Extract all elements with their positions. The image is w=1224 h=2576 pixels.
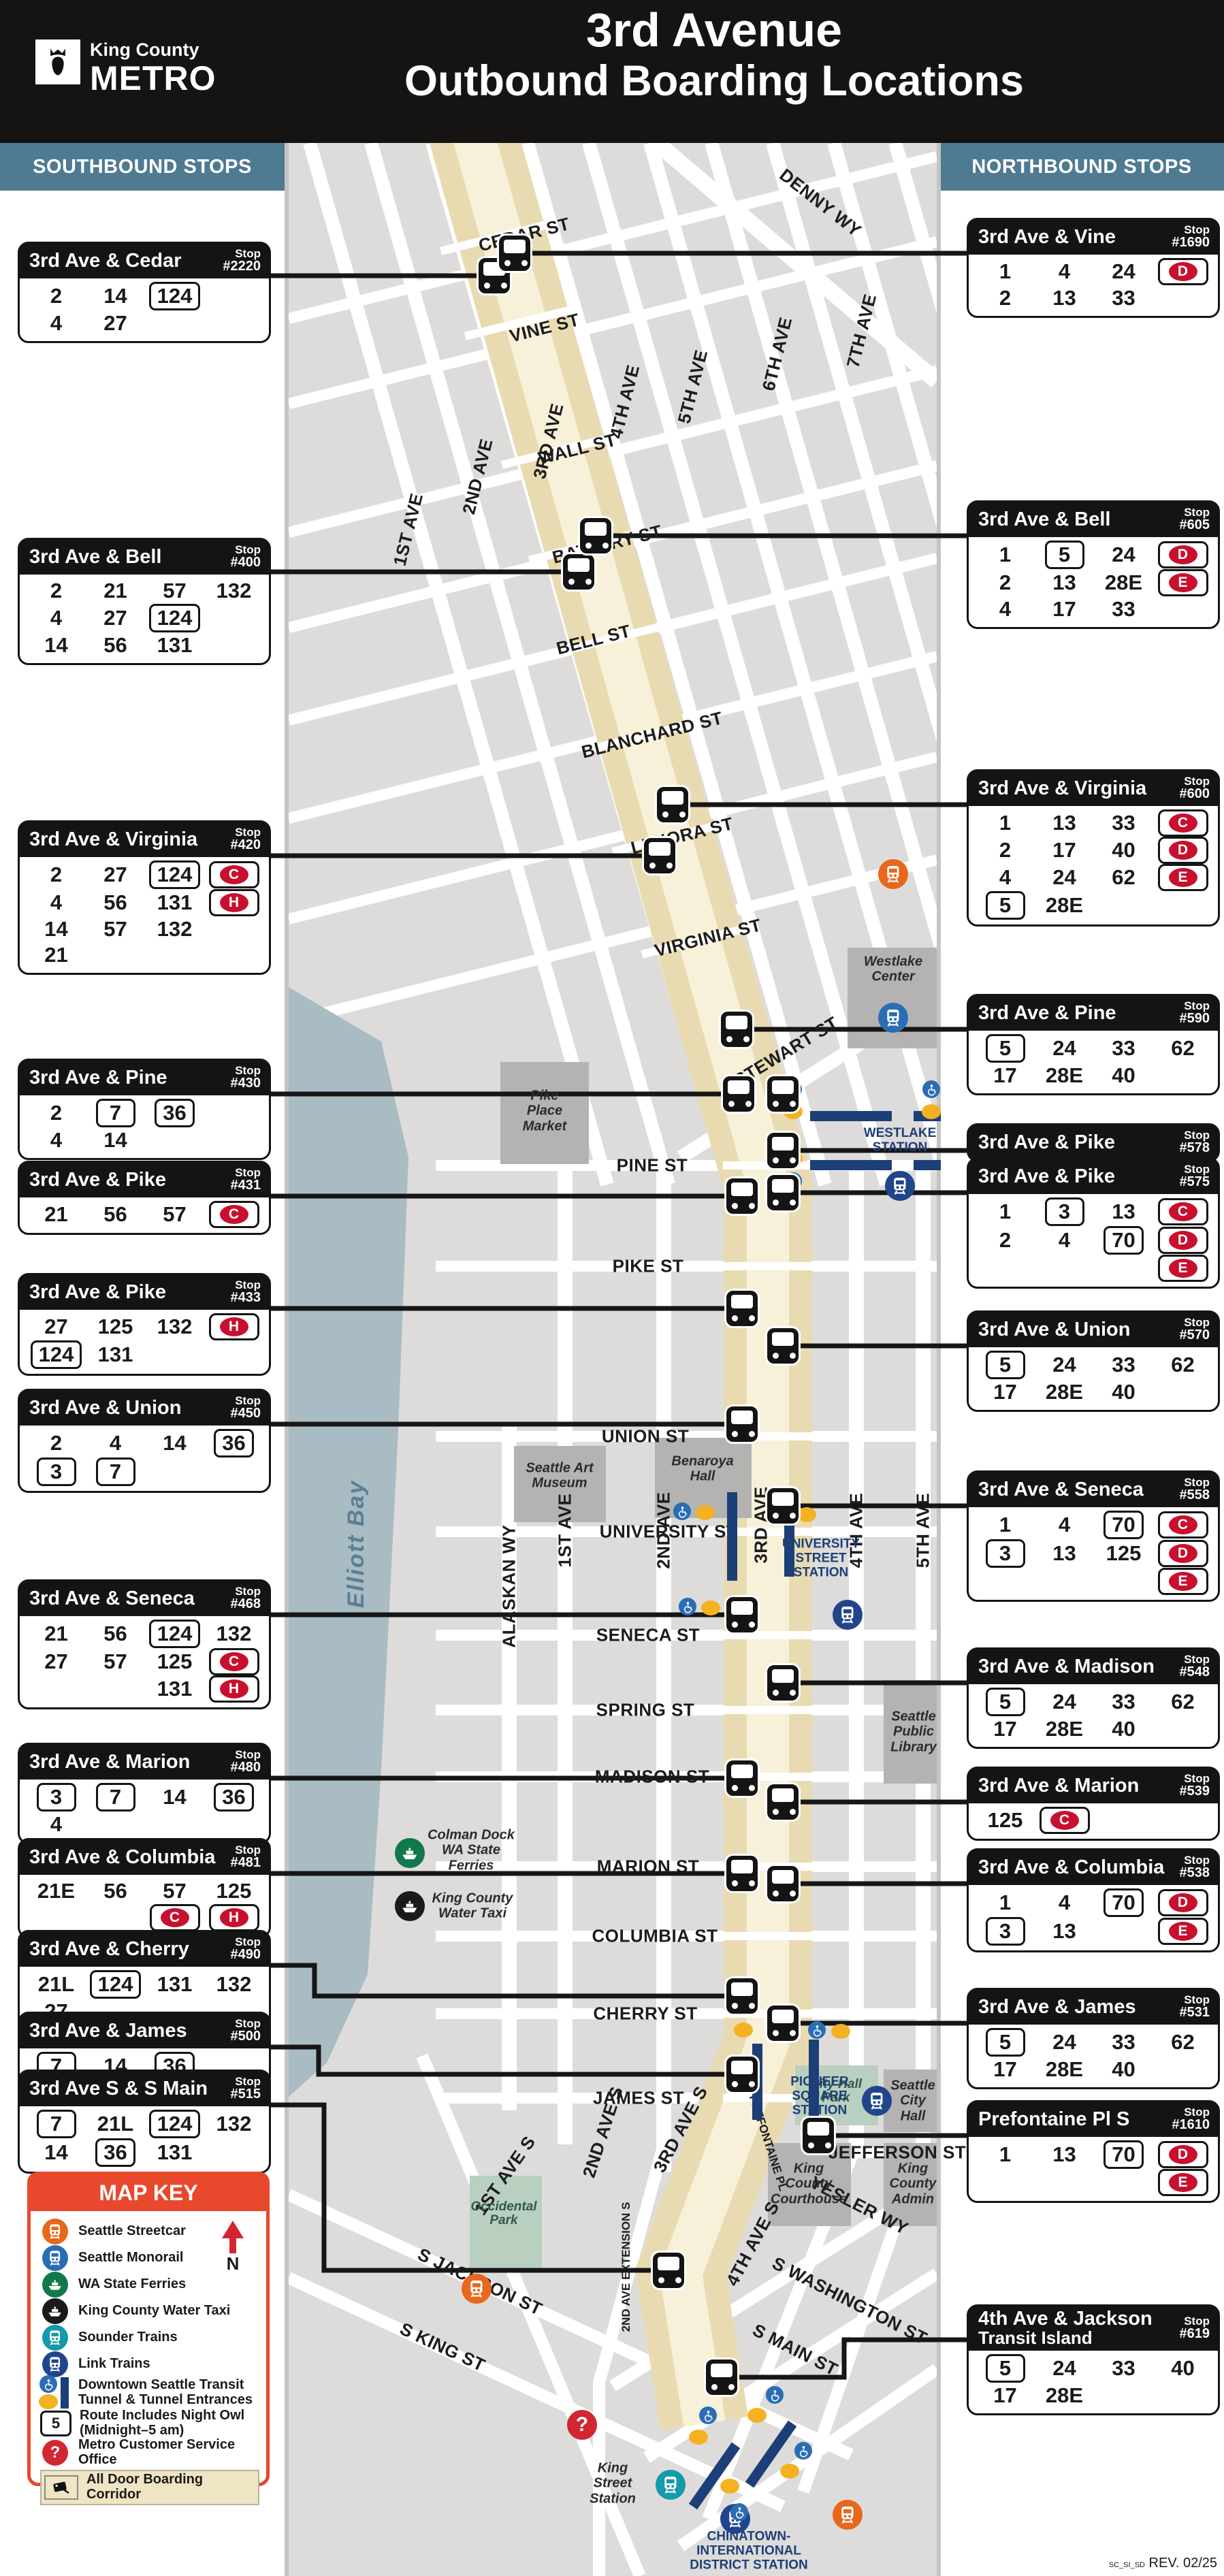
route-number: 4 (50, 1128, 62, 1153)
route-number: 2 (999, 838, 1011, 863)
stop-name: 3rd Ave & Marion (29, 1752, 190, 1772)
stop-name: 3rd Ave & Cedar (29, 251, 182, 271)
map-key-item-sounder: Sounder Trains (40, 2324, 259, 2351)
tunnel-key-part (61, 2377, 69, 2409)
map-key-item-corridor: All Door Boarding Corridor (40, 2470, 259, 2505)
route-list: 21E5657125CH (20, 1875, 269, 1936)
stop-header: 3rd Ave & BellStop#605 (969, 502, 1218, 537)
route-number-nightowl: 5 (1045, 541, 1084, 569)
route-row: E (976, 1568, 1212, 1595)
route-number: 33 (1112, 286, 1135, 310)
route-row: 21 (27, 942, 263, 968)
route-list: 11370DE (969, 2137, 1218, 2201)
route-list: 11333C21740D42462E528E (969, 806, 1218, 924)
stop-box-539: 3rd Ave & MarionStop#539125C (967, 1767, 1220, 1841)
stop-header: 3rd Ave & MarionStop#539 (969, 1769, 1218, 1803)
route-number: 132 (216, 1972, 252, 1997)
route-number-nightowl: 5 (986, 1688, 1025, 1716)
route-number: 21 (103, 579, 127, 603)
monorail-icon (42, 2245, 68, 2271)
corridor-key-icon (44, 2475, 78, 2500)
stop-name: 3rd Ave & Marion (978, 1775, 1139, 1796)
route-row: 11333C (976, 809, 1212, 837)
stop-header: 3rd Ave & UnionStop#450 (20, 1391, 269, 1426)
route-number: 57 (163, 579, 186, 603)
route-number-nightowl: 124 (149, 604, 201, 632)
route-row: 5243362 (976, 2028, 1212, 2057)
stop-box-605: 3rd Ave & BellStop#6051524D21328EE41733 (967, 500, 1220, 629)
route-number: 24 (1052, 2356, 1076, 2381)
stop-box-515: 3rd Ave S & S MainStop#515721L1241321436… (18, 2070, 271, 2174)
route-row: 427 (27, 310, 263, 336)
route-row: 1728E40 (976, 2057, 1212, 2082)
stop-name: 3rd Ave & Columbia (978, 1857, 1164, 1878)
stop-box-578: 3rd Ave & PikeStop#578 (967, 1123, 1220, 1162)
route-number: 17 (993, 2383, 1016, 2408)
route-number: 40 (1112, 1063, 1135, 1088)
rapidride-badge: E (1158, 1568, 1208, 1595)
stop-box-433: 3rd Ave & PikeStop#43327125132H124131 (18, 1273, 271, 1376)
agency-brand: METRO (90, 61, 216, 97)
route-number: 14 (163, 1431, 186, 1455)
route-number: 56 (103, 1879, 127, 1903)
rapidride-badge: D (1158, 258, 1208, 285)
map-key-label: WA State Ferries (78, 2277, 186, 2292)
route-number: 4 (999, 597, 1011, 622)
stop-number: Stop#1690 (1172, 224, 1210, 250)
route-number: 17 (1052, 597, 1076, 622)
route-row: 1728E (976, 2383, 1212, 2409)
stop-header: 3rd Ave & VirginiaStop#600 (969, 771, 1218, 806)
sounder-key-icon (40, 2325, 70, 2351)
street-map (285, 143, 941, 2576)
route-number: 132 (157, 917, 193, 941)
route-row: 37 (27, 1458, 263, 1486)
stop-number: Stop#590 (1180, 1000, 1210, 1026)
rapidride-badge: D (1158, 1227, 1208, 1254)
route-row: 42462E (976, 864, 1212, 891)
route-row: 5243362 (976, 1034, 1212, 1063)
rapidride-badge: D (1158, 541, 1208, 568)
rapidride-badge: C (209, 1648, 259, 1675)
route-list: 227124C456131H145713221 (20, 857, 269, 973)
route-row: 214124 (27, 282, 263, 310)
map-key-label: Link Trains (78, 2357, 150, 2372)
title-line-1: 3rd Avenue (245, 4, 1183, 57)
route-number: 4 (50, 311, 62, 336)
stop-number: Stop#400 (231, 544, 261, 570)
route-number-nightowl: 3 (1045, 1197, 1084, 1226)
northbound-stops-bar: NORTHBOUND STOPS (939, 143, 1224, 191)
route-row: 2736 (27, 1099, 263, 1127)
route-number: 4 (1059, 1228, 1070, 1253)
route-number: 131 (157, 1972, 193, 1997)
stop-header: 3rd Ave & UnionStop#570 (969, 1313, 1218, 1347)
route-number: 4 (50, 890, 62, 915)
route-row: 5243340 (976, 2354, 1212, 2383)
route-number: 27 (44, 1315, 67, 1339)
rapidride-badge: D (1158, 1540, 1208, 1567)
route-number: 62 (1171, 1036, 1194, 1061)
route-row: 528E (976, 891, 1212, 920)
route-number-nightowl: 7 (37, 2110, 76, 2138)
route-number: 4 (999, 865, 1011, 890)
route-number: 57 (163, 1202, 186, 1227)
route-number-nightowl: 36 (214, 1429, 253, 1458)
rapidride-badge: H (209, 1313, 259, 1340)
night-owl-route-box: 5 (40, 2411, 71, 2436)
route-row: CH (27, 1904, 263, 1931)
route-number-nightowl: 36 (95, 2138, 135, 2167)
route-list: 52433621728E40 (969, 2025, 1218, 2087)
route-row: 22157132 (27, 578, 263, 604)
route-row: 227124C (27, 860, 263, 889)
route-number: 131 (98, 1342, 133, 1367)
route-number: 28E (1046, 893, 1083, 918)
route-number-nightowl: 124 (149, 860, 201, 889)
route-row: 124131 (27, 1340, 263, 1369)
route-row: 241436 (27, 1429, 263, 1458)
stop-header: 3rd Ave & SenecaStop#558 (969, 1472, 1218, 1507)
route-number: 125 (157, 1649, 193, 1674)
route-number: 56 (103, 1622, 127, 1646)
route-number: 57 (103, 1649, 127, 1674)
route-number-nightowl: 124 (90, 1970, 142, 1999)
route-number-nightowl: 7 (96, 1099, 135, 1127)
route-row: 4 (27, 1812, 263, 1837)
route-list: 2736414 (20, 1095, 269, 1158)
map-key-item-tunnel: Downtown Seattle TransitTunnel & Tunnel … (40, 2377, 259, 2409)
route-number: 33 (1112, 2030, 1135, 2055)
map-key: MAP KEY N Seattle StreetcarSeattle Monor… (27, 2172, 270, 2486)
stop-header: 3rd Ave & BellStop#400 (20, 540, 269, 575)
route-row: 21740D (976, 837, 1212, 864)
rapidride-badge: D (1158, 2141, 1208, 2168)
route-list: 721L1241321436131 (20, 2106, 269, 2172)
stop-box-480: 3rd Ave & MarionStop#4803714364 (18, 1743, 271, 1844)
stop-name: 3rd Ave & Union (29, 1398, 181, 1418)
route-row: 1728E40 (976, 1379, 1212, 1405)
route-number: 2 (50, 284, 62, 308)
agency-name: King County (90, 39, 216, 61)
stop-box-570: 3rd Ave & UnionStop#57052433621728E40 (967, 1310, 1220, 1412)
rapidride-badge: E (1158, 569, 1208, 596)
route-number: 33 (1112, 597, 1135, 622)
poster: King County METRO 3rd Avenue Outbound Bo… (0, 0, 1224, 2576)
map-key-label: Metro Customer Service Office (78, 2438, 259, 2467)
map-key-label: King County Water Taxi (78, 2304, 230, 2319)
route-list: 215657C (20, 1197, 269, 1233)
stop-number: Stop#480 (231, 1749, 261, 1775)
stop-name: 3rd Ave & James (29, 2020, 187, 2041)
map-key-title: MAP KEY (31, 2175, 266, 2211)
rapidride-badge: D (1158, 1889, 1208, 1916)
revision-note: SC_SI_SD REV. 02/25 (1109, 2556, 1217, 2571)
stop-name: 4th Ave & JacksonTransit Island (978, 2308, 1153, 2348)
stop-number: Stop#1610 (1172, 2106, 1210, 2132)
route-row: 21333 (976, 285, 1212, 311)
stop-box-548: 3rd Ave & MadisonStop#54852433621728E40 (967, 1647, 1220, 1749)
route-number: 1 (999, 1200, 1011, 1224)
route-number: 14 (44, 633, 67, 658)
stop-name: 3rd Ave & Union (978, 1319, 1130, 1340)
route-number: 21 (44, 943, 67, 967)
stop-number: Stop#538 (1180, 1854, 1210, 1880)
stop-name: 3rd Ave & Bell (978, 509, 1110, 530)
route-number: 28E (1046, 1380, 1083, 1404)
stop-box-2220: 3rd Ave & CedarStop#2220214124427 (18, 242, 271, 343)
stop-header: 3rd Ave & VirginiaStop#420 (20, 822, 269, 857)
route-number: 14 (44, 917, 67, 941)
map-key-label: Sounder Trains (78, 2330, 178, 2345)
route-number: 125 (98, 1315, 133, 1339)
stop-name: 3rd Ave & Pine (978, 1003, 1116, 1023)
sounder-icon (42, 2325, 68, 2351)
map-key-label: Seattle Monorail (78, 2251, 183, 2266)
route-number: 4 (110, 1431, 121, 1455)
route-number: 4 (1059, 259, 1070, 284)
route-row: 1470C (976, 1511, 1212, 1539)
north-label: N (217, 2253, 248, 2274)
route-row: E (976, 1255, 1212, 1282)
stop-box-481: 3rd Ave & ColumbiaStop#48121E5657125CH (18, 1838, 271, 1938)
stop-name: Prefontaine Pl S (978, 2109, 1129, 2129)
question-icon: ? (42, 2440, 68, 2466)
rapidride-badge: E (1158, 1255, 1208, 1282)
route-row: 21E5657125 (27, 1878, 263, 1904)
route-number: 131 (157, 890, 193, 915)
route-number-nightowl: 36 (155, 1099, 194, 1127)
stop-box-1610: Prefontaine Pl SStop#161011370DE (967, 2100, 1220, 2203)
route-number: 2 (999, 1228, 1011, 1253)
rapidride-badge: C (1158, 809, 1208, 837)
stop-name: 3rd Ave S & S Main (29, 2078, 208, 2099)
tunnel-key-part (39, 2375, 57, 2393)
ferry-icon (42, 2272, 68, 2298)
stop-box-400: 3rd Ave & BellStop#400221571324271241456… (18, 538, 271, 665)
stop-number: Stop#450 (231, 1395, 261, 1421)
route-list: 1470C313125DE (969, 1507, 1218, 1600)
route-number: 33 (1112, 1353, 1135, 1377)
route-number-nightowl: 7 (96, 1783, 135, 1812)
north-arrow: N (217, 2221, 248, 2274)
route-list: 24143637 (20, 1426, 269, 1491)
route-number: 132 (216, 1622, 252, 1646)
stop-header: 3rd Ave & PineStop#430 (20, 1061, 269, 1095)
route-number: 14 (44, 2140, 67, 2165)
route-number: 1 (999, 543, 1011, 567)
route-row: 2757125C (27, 1648, 263, 1675)
route-number: 21L (97, 2112, 133, 2136)
route-number: 33 (1112, 1036, 1135, 1061)
route-number: 28E (1046, 2057, 1083, 2082)
stop-box-450: 3rd Ave & UnionStop#45024143637 (18, 1389, 271, 1493)
route-number-nightowl: 70 (1104, 1511, 1143, 1539)
route-row: 721L124132 (27, 2110, 263, 2138)
route-row: 1728E40 (976, 1063, 1212, 1089)
route-number: 40 (1112, 1380, 1135, 1404)
stop-header: Prefontaine Pl SStop#1610 (969, 2102, 1218, 2137)
route-number: 14 (103, 1128, 127, 1153)
route-number: 40 (1171, 2356, 1194, 2381)
southbound-stops-bar: SOUTHBOUND STOPS (0, 143, 285, 191)
route-number: 2 (50, 863, 62, 887)
route-row: 1524D (976, 541, 1212, 569)
rapidride-badge: E (1158, 2169, 1208, 2196)
rapidride-badge: E (1158, 864, 1208, 891)
route-list: 1524D21328EE41733 (969, 537, 1218, 627)
question-key-icon: ? (40, 2440, 70, 2466)
route-list: 52433621728E40 (969, 1347, 1218, 1410)
stop-box-420: 3rd Ave & VirginiaStop#420227124C456131H… (18, 820, 271, 975)
rapidride-badge: H (209, 1904, 259, 1931)
route-number: 131 (157, 1677, 193, 1701)
stop-header: 3rd Ave & ColumbiaStop#481 (20, 1840, 269, 1875)
route-number: 1 (999, 259, 1011, 284)
route-number: 1 (999, 811, 1011, 835)
stop-header: 3rd Ave & CherryStop#490 (20, 1932, 269, 1967)
stop-box-538: 3rd Ave & ColumbiaStop#5381470D313E (967, 1848, 1220, 1952)
stop-box-619: 4th Ave & JacksonTransit IslandStop#6195… (967, 2304, 1220, 2415)
route-number: 131 (157, 2140, 193, 2165)
route-number: 56 (103, 633, 127, 658)
map-key-item-watertaxi: King County Water Taxi (40, 2298, 259, 2324)
route-number: 27 (44, 1649, 67, 1674)
route-row: 427124 (27, 604, 263, 632)
stop-number: Stop#548 (1180, 1654, 1210, 1679)
route-number-nightowl: 5 (986, 2354, 1025, 2383)
route-row: 313E (976, 1917, 1212, 1946)
stop-box-590: 3rd Ave & PineStop#59052433621728E40 (967, 994, 1220, 1095)
route-row: 1457132 (27, 916, 263, 942)
route-number: 24 (1112, 259, 1135, 284)
stop-header: 3rd Ave & PikeStop#431 (20, 1163, 269, 1197)
stop-number: Stop#558 (1180, 1477, 1210, 1502)
route-number-nightowl: 3 (986, 1539, 1025, 1568)
route-number: 40 (1112, 838, 1135, 863)
route-number-nightowl: 3 (986, 1917, 1025, 1946)
stop-number: Stop#468 (231, 1585, 261, 1611)
stop-name: 3rd Ave & Pike (978, 1132, 1115, 1153)
stop-name: 3rd Ave & Vine (978, 227, 1116, 247)
route-number-nightowl: 3 (37, 1783, 76, 1812)
route-row: 27125132H (27, 1313, 263, 1340)
route-row: E (976, 2169, 1212, 2196)
route-number: 14 (163, 1785, 186, 1809)
stop-name: 3rd Ave & Bell (29, 547, 161, 567)
stop-header: 3rd Ave & VineStop#1690 (969, 220, 1218, 255)
stop-number: Stop#481 (231, 1844, 261, 1870)
stop-name: 3rd Ave & Columbia (29, 1847, 215, 1867)
route-number: 27 (103, 311, 127, 336)
stop-name: 3rd Ave & Seneca (29, 1588, 195, 1609)
route-row: 215657C (27, 1201, 263, 1228)
route-number: 17 (1052, 838, 1076, 863)
route-number-nightowl: 5 (986, 1351, 1025, 1379)
route-number: 21E (37, 1879, 75, 1903)
stop-header: 3rd Ave & JamesStop#531 (969, 1990, 1218, 2025)
stop-box-558: 3rd Ave & SenecaStop#5581470C313125DE (967, 1470, 1220, 1602)
route-number: 28E (1046, 2383, 1083, 2408)
route-list: 52433621728E40 (969, 1684, 1218, 1747)
route-number-nightowl: 36 (214, 1783, 253, 1812)
route-number: 28E (1046, 1717, 1083, 1741)
stop-number: Stop#500 (231, 2018, 261, 2044)
route-list: 221571324271241456131 (20, 575, 269, 663)
rapidride-badge: C (1158, 1511, 1208, 1539)
route-number: 13 (1052, 286, 1076, 310)
route-list: 1470D313E (969, 1885, 1218, 1950)
route-number: 24 (1052, 865, 1076, 890)
route-number: 2 (50, 1431, 62, 1455)
stop-header: 3rd Ave & JamesStop#500 (20, 2014, 269, 2048)
route-row: 5243362 (976, 1351, 1212, 1379)
stop-header: 3rd Ave S & S MainStop#515 (20, 2072, 269, 2106)
stop-name: 3rd Ave & Pike (29, 1282, 166, 1302)
stop-name: 3rd Ave & Virginia (29, 829, 197, 850)
stop-number: Stop#570 (1180, 1317, 1210, 1342)
rapidride-badge: H (209, 889, 259, 916)
stop-header: 3rd Ave & CedarStop#2220 (20, 244, 269, 278)
title-line-2: Outbound Boarding Locations (245, 57, 1183, 106)
route-number: 17 (993, 1063, 1016, 1088)
stop-number: Stop#431 (231, 1167, 261, 1193)
stop-box-431: 3rd Ave & PikeStop#431215657C (18, 1161, 271, 1235)
stop-header: 3rd Ave & PikeStop#578 (969, 1125, 1218, 1160)
route-row: 11370D (976, 2140, 1212, 2169)
stop-box-430: 3rd Ave & PineStop#4302736414 (18, 1059, 271, 1160)
route-row: 414 (27, 1127, 263, 1153)
route-number-nightowl: 70 (1104, 1888, 1143, 1917)
route-number-nightowl: 124 (149, 2110, 201, 2138)
streetcar-icon (42, 2219, 68, 2244)
route-number: 132 (216, 579, 252, 603)
route-number: 13 (1052, 570, 1076, 595)
streetcar-key-icon (40, 2219, 70, 2244)
all-door-boarding-swatch (44, 2475, 78, 2500)
route-number: 13 (1112, 1200, 1135, 1224)
route-number: 13 (1052, 1919, 1076, 1944)
king-county-logo-icon (35, 39, 80, 84)
stop-number: Stop#430 (231, 1065, 261, 1091)
route-number: 1 (999, 2142, 1011, 2167)
monorail-key-icon (40, 2245, 70, 2271)
route-number: 28E (1105, 570, 1142, 595)
stop-header: 3rd Ave & PineStop#590 (969, 996, 1218, 1031)
route-number: 4 (1059, 1890, 1070, 1915)
map-key-item-question: ?Metro Customer Service Office (40, 2438, 259, 2467)
route-number: 21 (44, 1202, 67, 1227)
stop-name: 3rd Ave & Seneca (978, 1479, 1144, 1500)
route-row: 1456131 (27, 632, 263, 658)
revision-code: SC_SI_SD (1109, 2561, 1145, 2569)
route-number: 13 (1052, 811, 1076, 835)
route-number: 1 (999, 1513, 1011, 1537)
route-number: 57 (103, 917, 127, 941)
route-number-nightowl: 5 (986, 891, 1025, 920)
stop-name: 3rd Ave & James (978, 1997, 1136, 2017)
route-number-nightowl: 7 (96, 1458, 135, 1486)
link-icon (42, 2351, 68, 2377)
route-number: 4 (50, 606, 62, 630)
stop-number: Stop#515 (231, 2076, 261, 2102)
map-key-label: Seattle Streetcar (78, 2224, 186, 2239)
stop-number: Stop#490 (231, 1936, 261, 1962)
route-row: 21L124131132 (27, 1970, 263, 1999)
stop-header: 3rd Ave & MadisonStop#548 (969, 1649, 1218, 1684)
route-number: 14 (103, 284, 127, 308)
header: King County METRO 3rd Avenue Outbound Bo… (0, 0, 1224, 143)
